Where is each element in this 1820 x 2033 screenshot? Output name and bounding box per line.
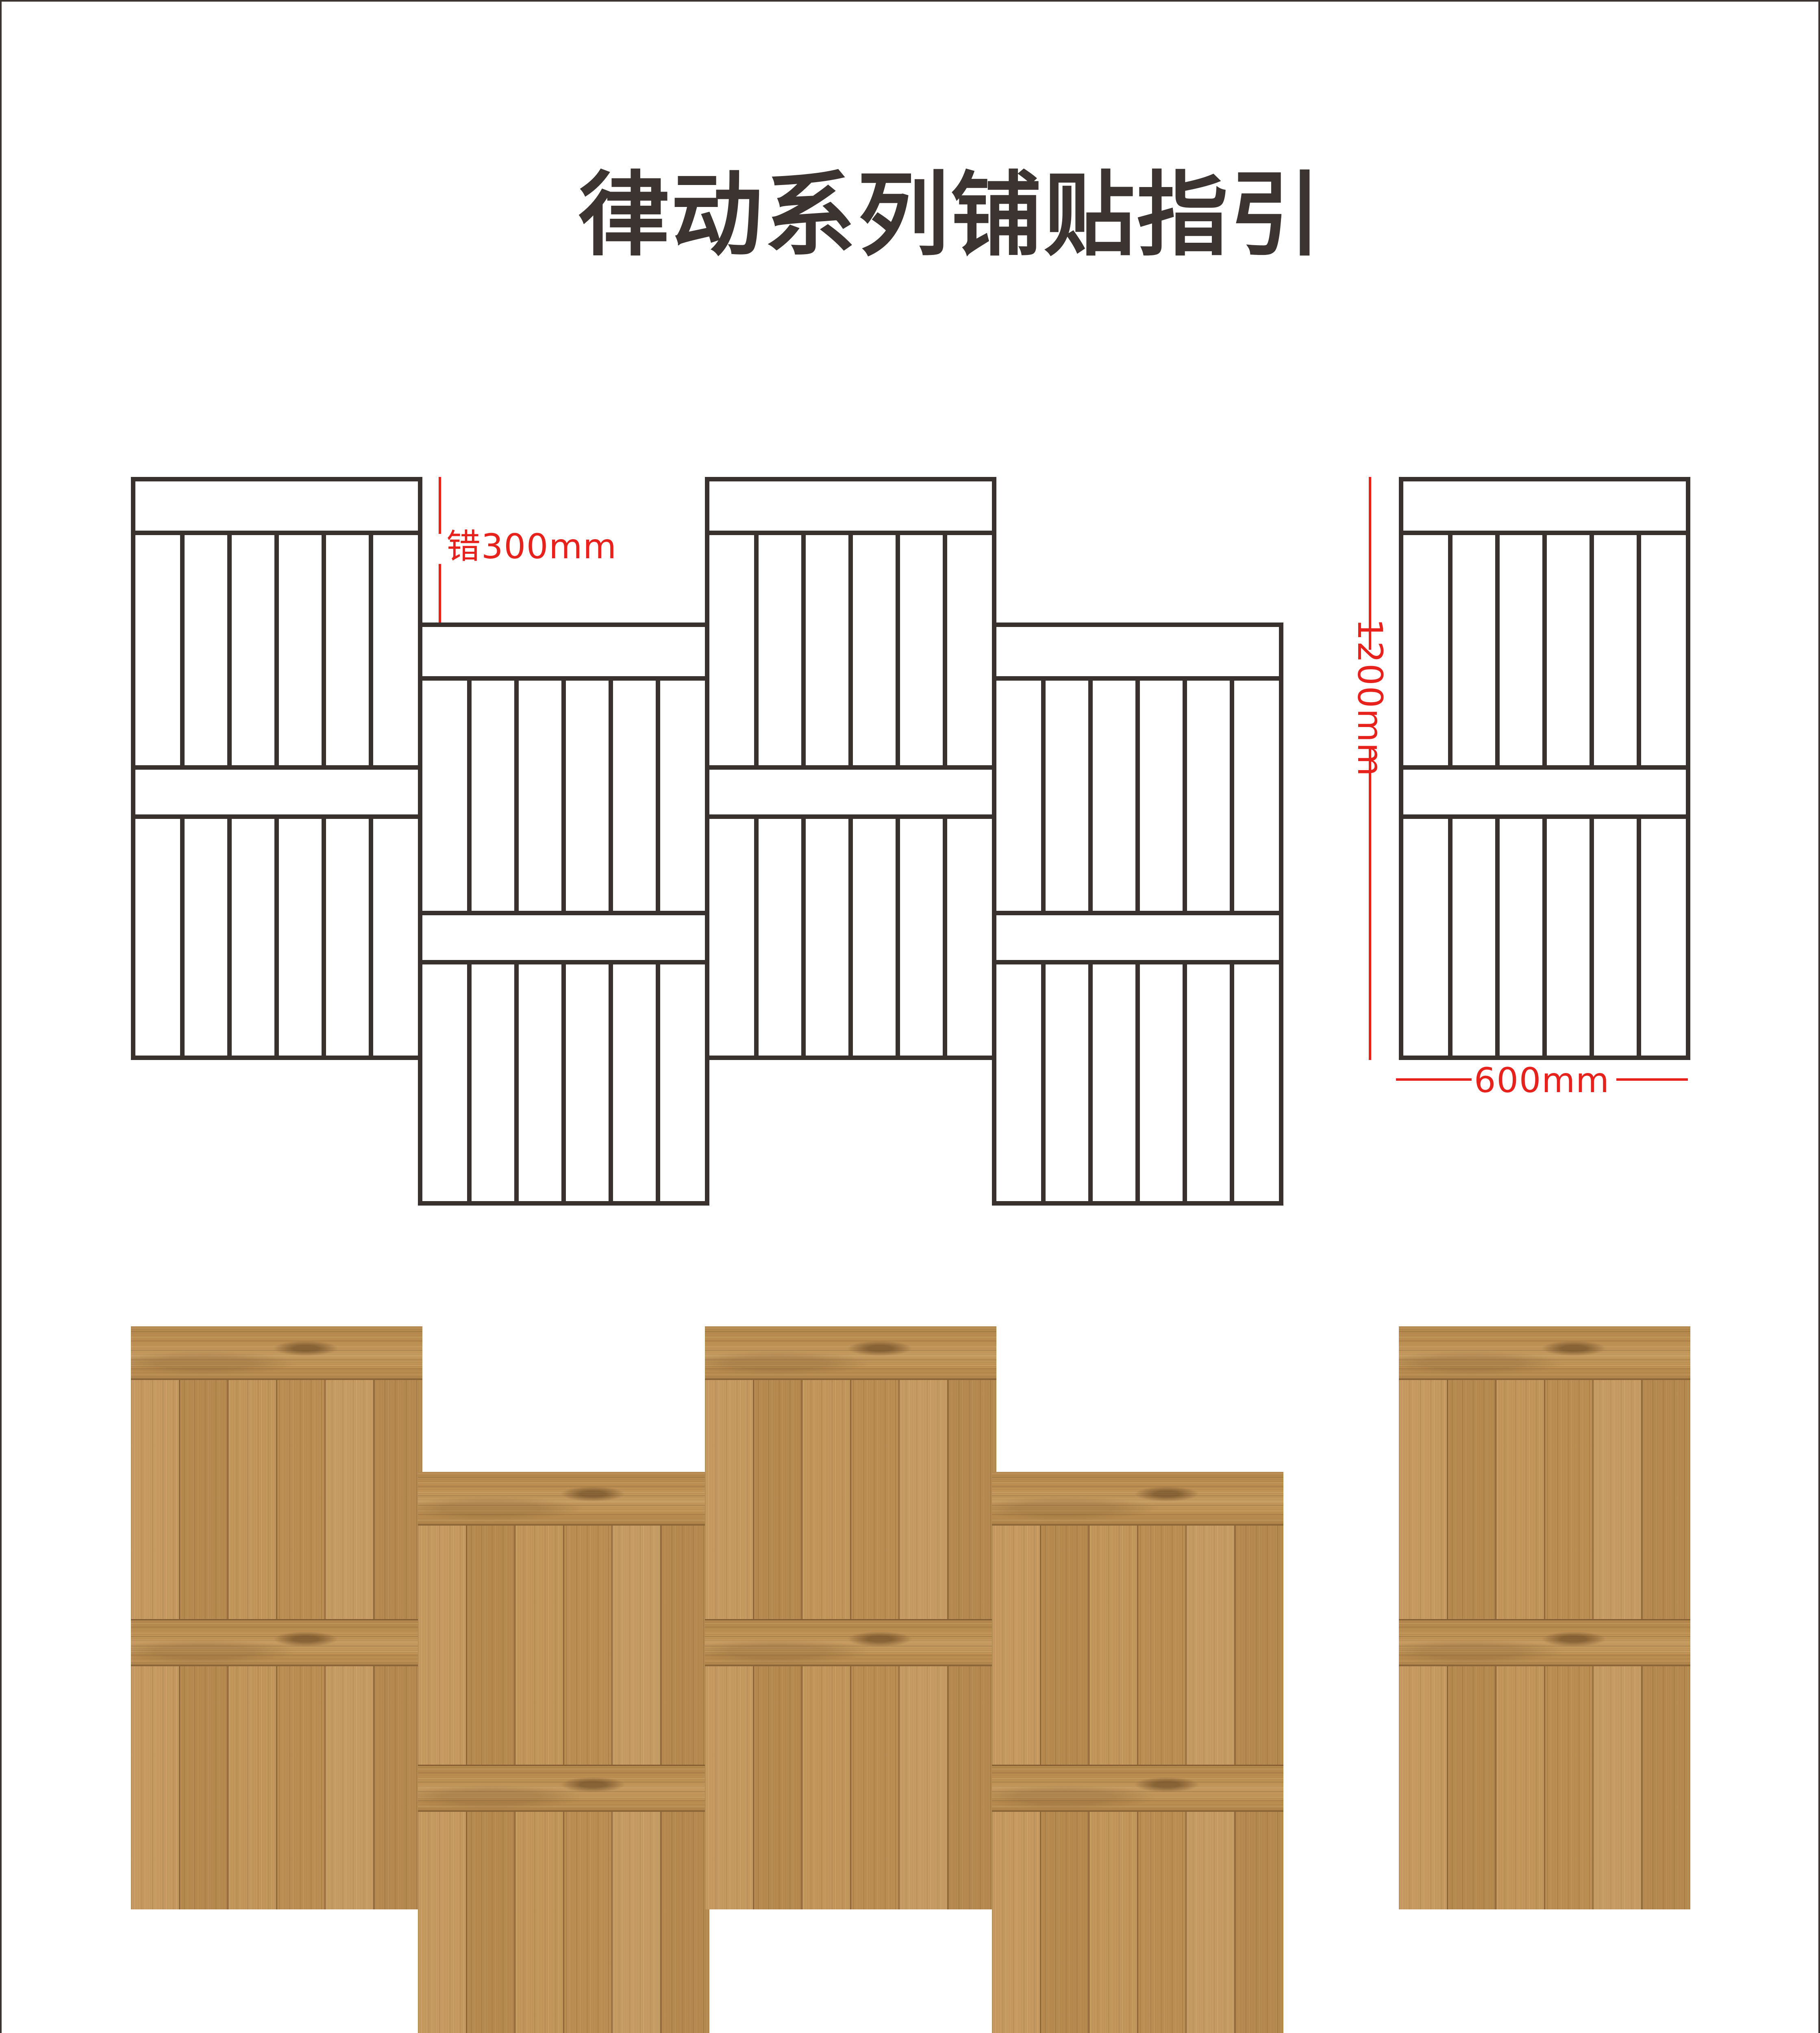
tile-planks [992, 1812, 1283, 2033]
wood-tile-standalone [1399, 1326, 1690, 1909]
tile-rail [705, 1326, 996, 1380]
tile-planks [1399, 1666, 1690, 1909]
wood-texture-diagram [0, 0, 1820, 2033]
offset-dimension-label: 错300mm [446, 529, 617, 564]
tile-rail [418, 1765, 709, 1812]
tile-rail [1399, 1326, 1690, 1380]
wood-tile-col3 [705, 1326, 996, 1909]
tile-rail [418, 1472, 709, 1526]
height-dimension-label: 1200mm [1353, 618, 1387, 777]
tile-planks [1399, 1380, 1690, 1619]
wood-tile-col2 [418, 1472, 709, 2033]
tile-planks [418, 1526, 709, 1765]
width-dimension-label: 600mm [1474, 1063, 1610, 1097]
tile-planks [131, 1666, 422, 1909]
width-dimension-line-right [1616, 1078, 1688, 1081]
page: { "title": { "text": "律动系列铺贴指引" }, "capt… [0, 0, 1820, 2033]
tile-rail [131, 1326, 422, 1380]
tile-planks [131, 1380, 422, 1619]
tile-planks [705, 1380, 996, 1619]
offset-dimension-line-bottom [439, 564, 441, 623]
wood-tile-col1 [131, 1326, 422, 1909]
offset-dimension-line-top [439, 477, 441, 534]
wood-tile-col4 [992, 1472, 1283, 2033]
tile-rail [131, 1619, 422, 1666]
tile-rail [992, 1472, 1283, 1526]
tile-planks [992, 1526, 1283, 1765]
tile-planks [705, 1666, 996, 1909]
tile-planks [418, 1812, 709, 2033]
height-dimension-line-bottom [1369, 748, 1371, 1060]
tile-rail [992, 1765, 1283, 1812]
tile-rail [1399, 1619, 1690, 1666]
tile-rail [705, 1619, 996, 1666]
width-dimension-line-left [1396, 1078, 1472, 1081]
